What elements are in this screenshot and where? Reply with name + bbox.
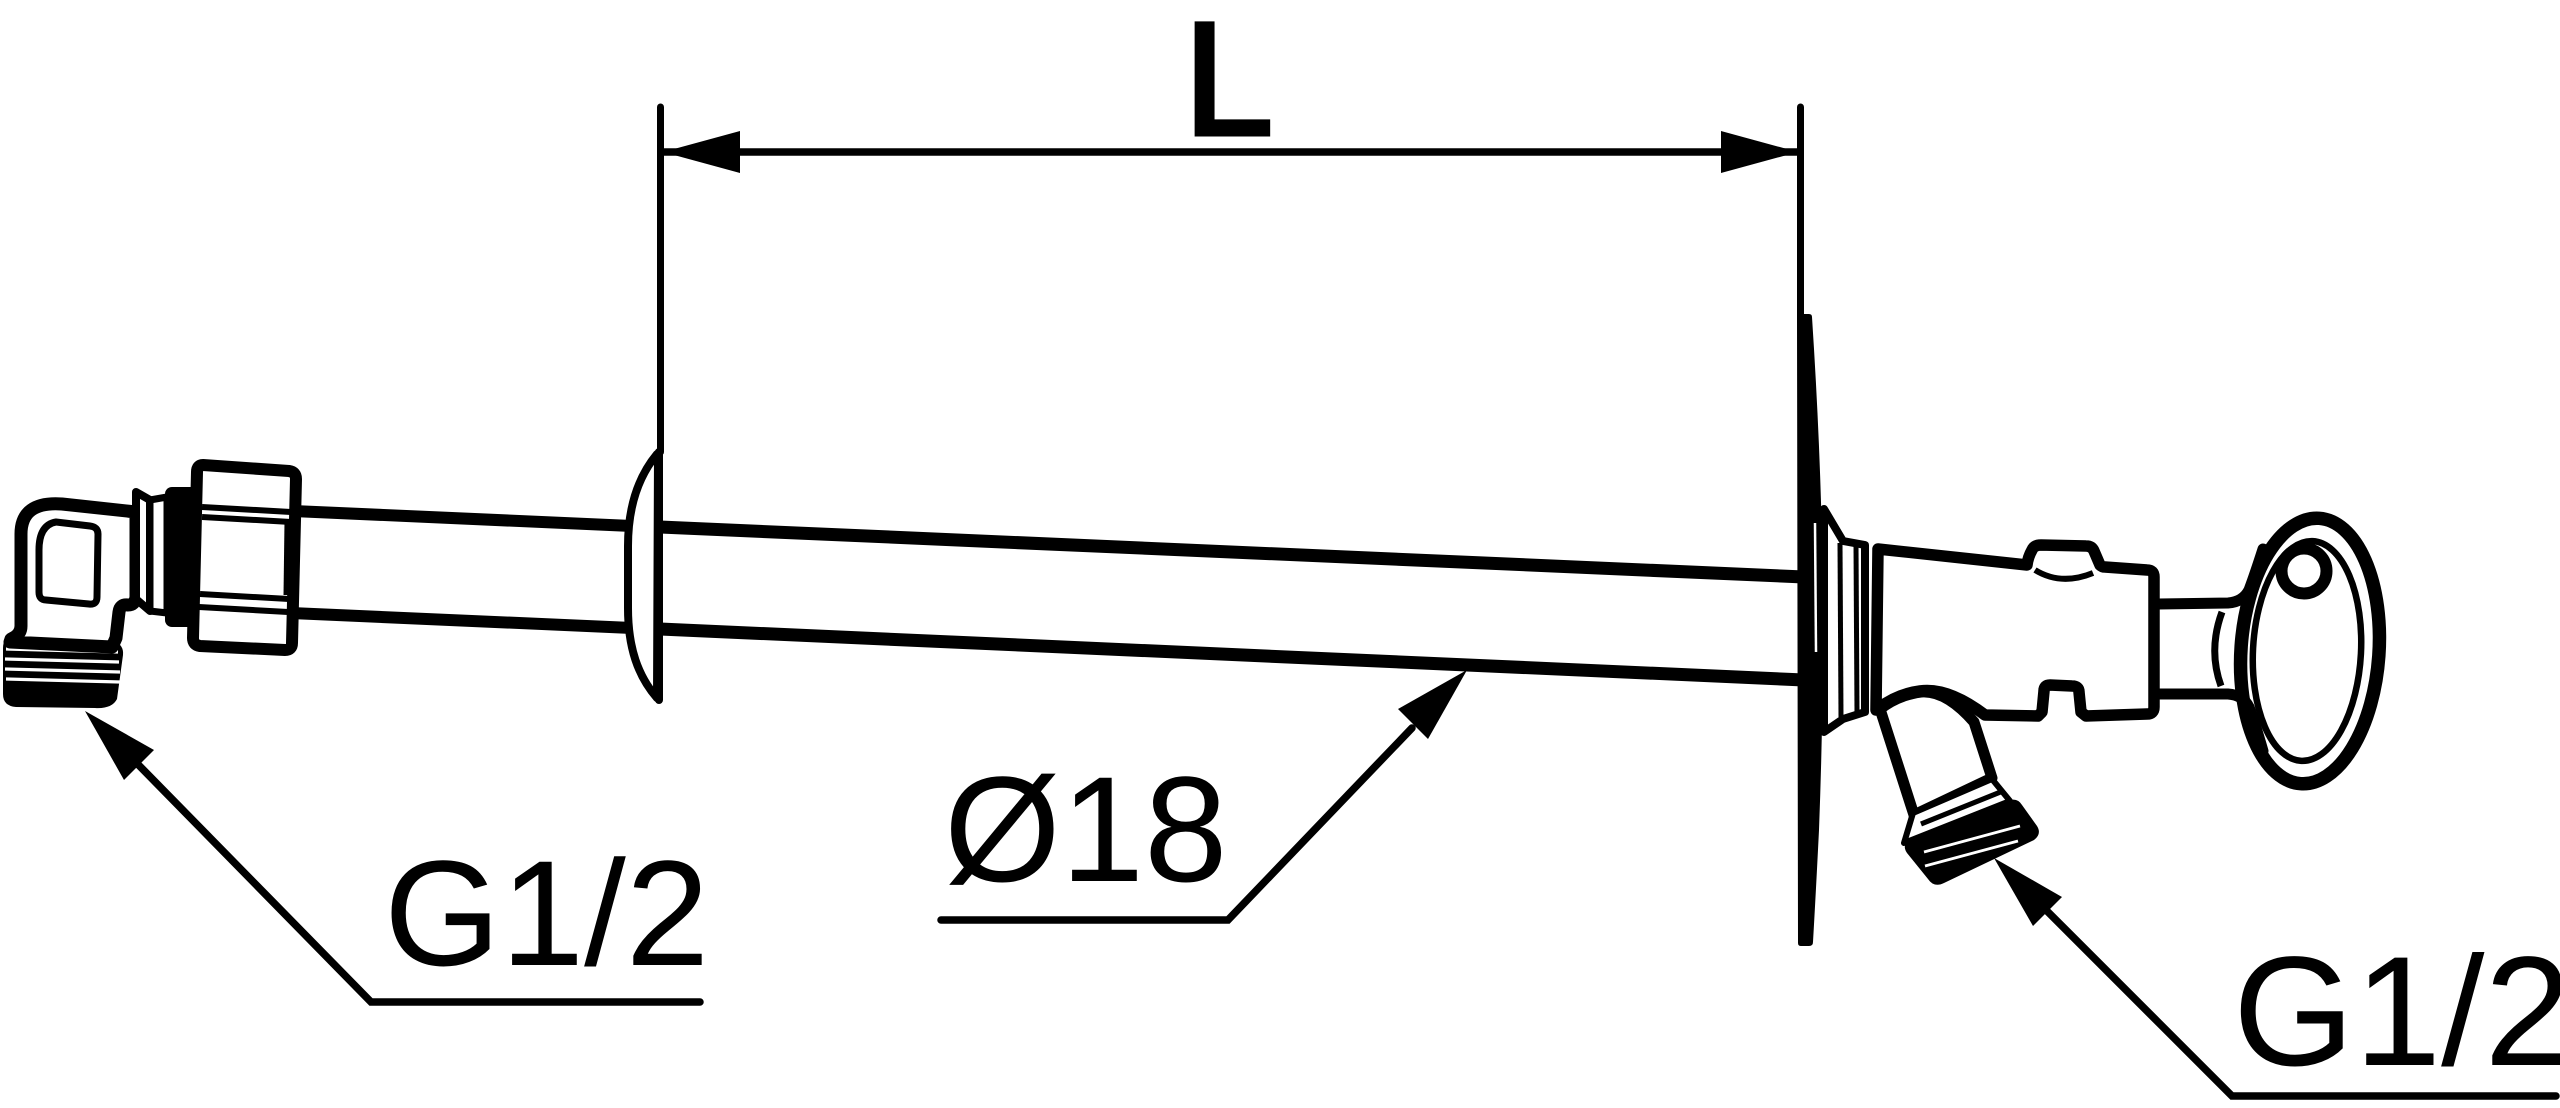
svg-text:Ø18: Ø18 <box>944 745 1228 913</box>
svg-text:G1/2: G1/2 <box>2233 925 2560 1099</box>
svg-text:G1/2: G1/2 <box>384 829 709 997</box>
svg-text:L: L <box>1184 0 1273 168</box>
